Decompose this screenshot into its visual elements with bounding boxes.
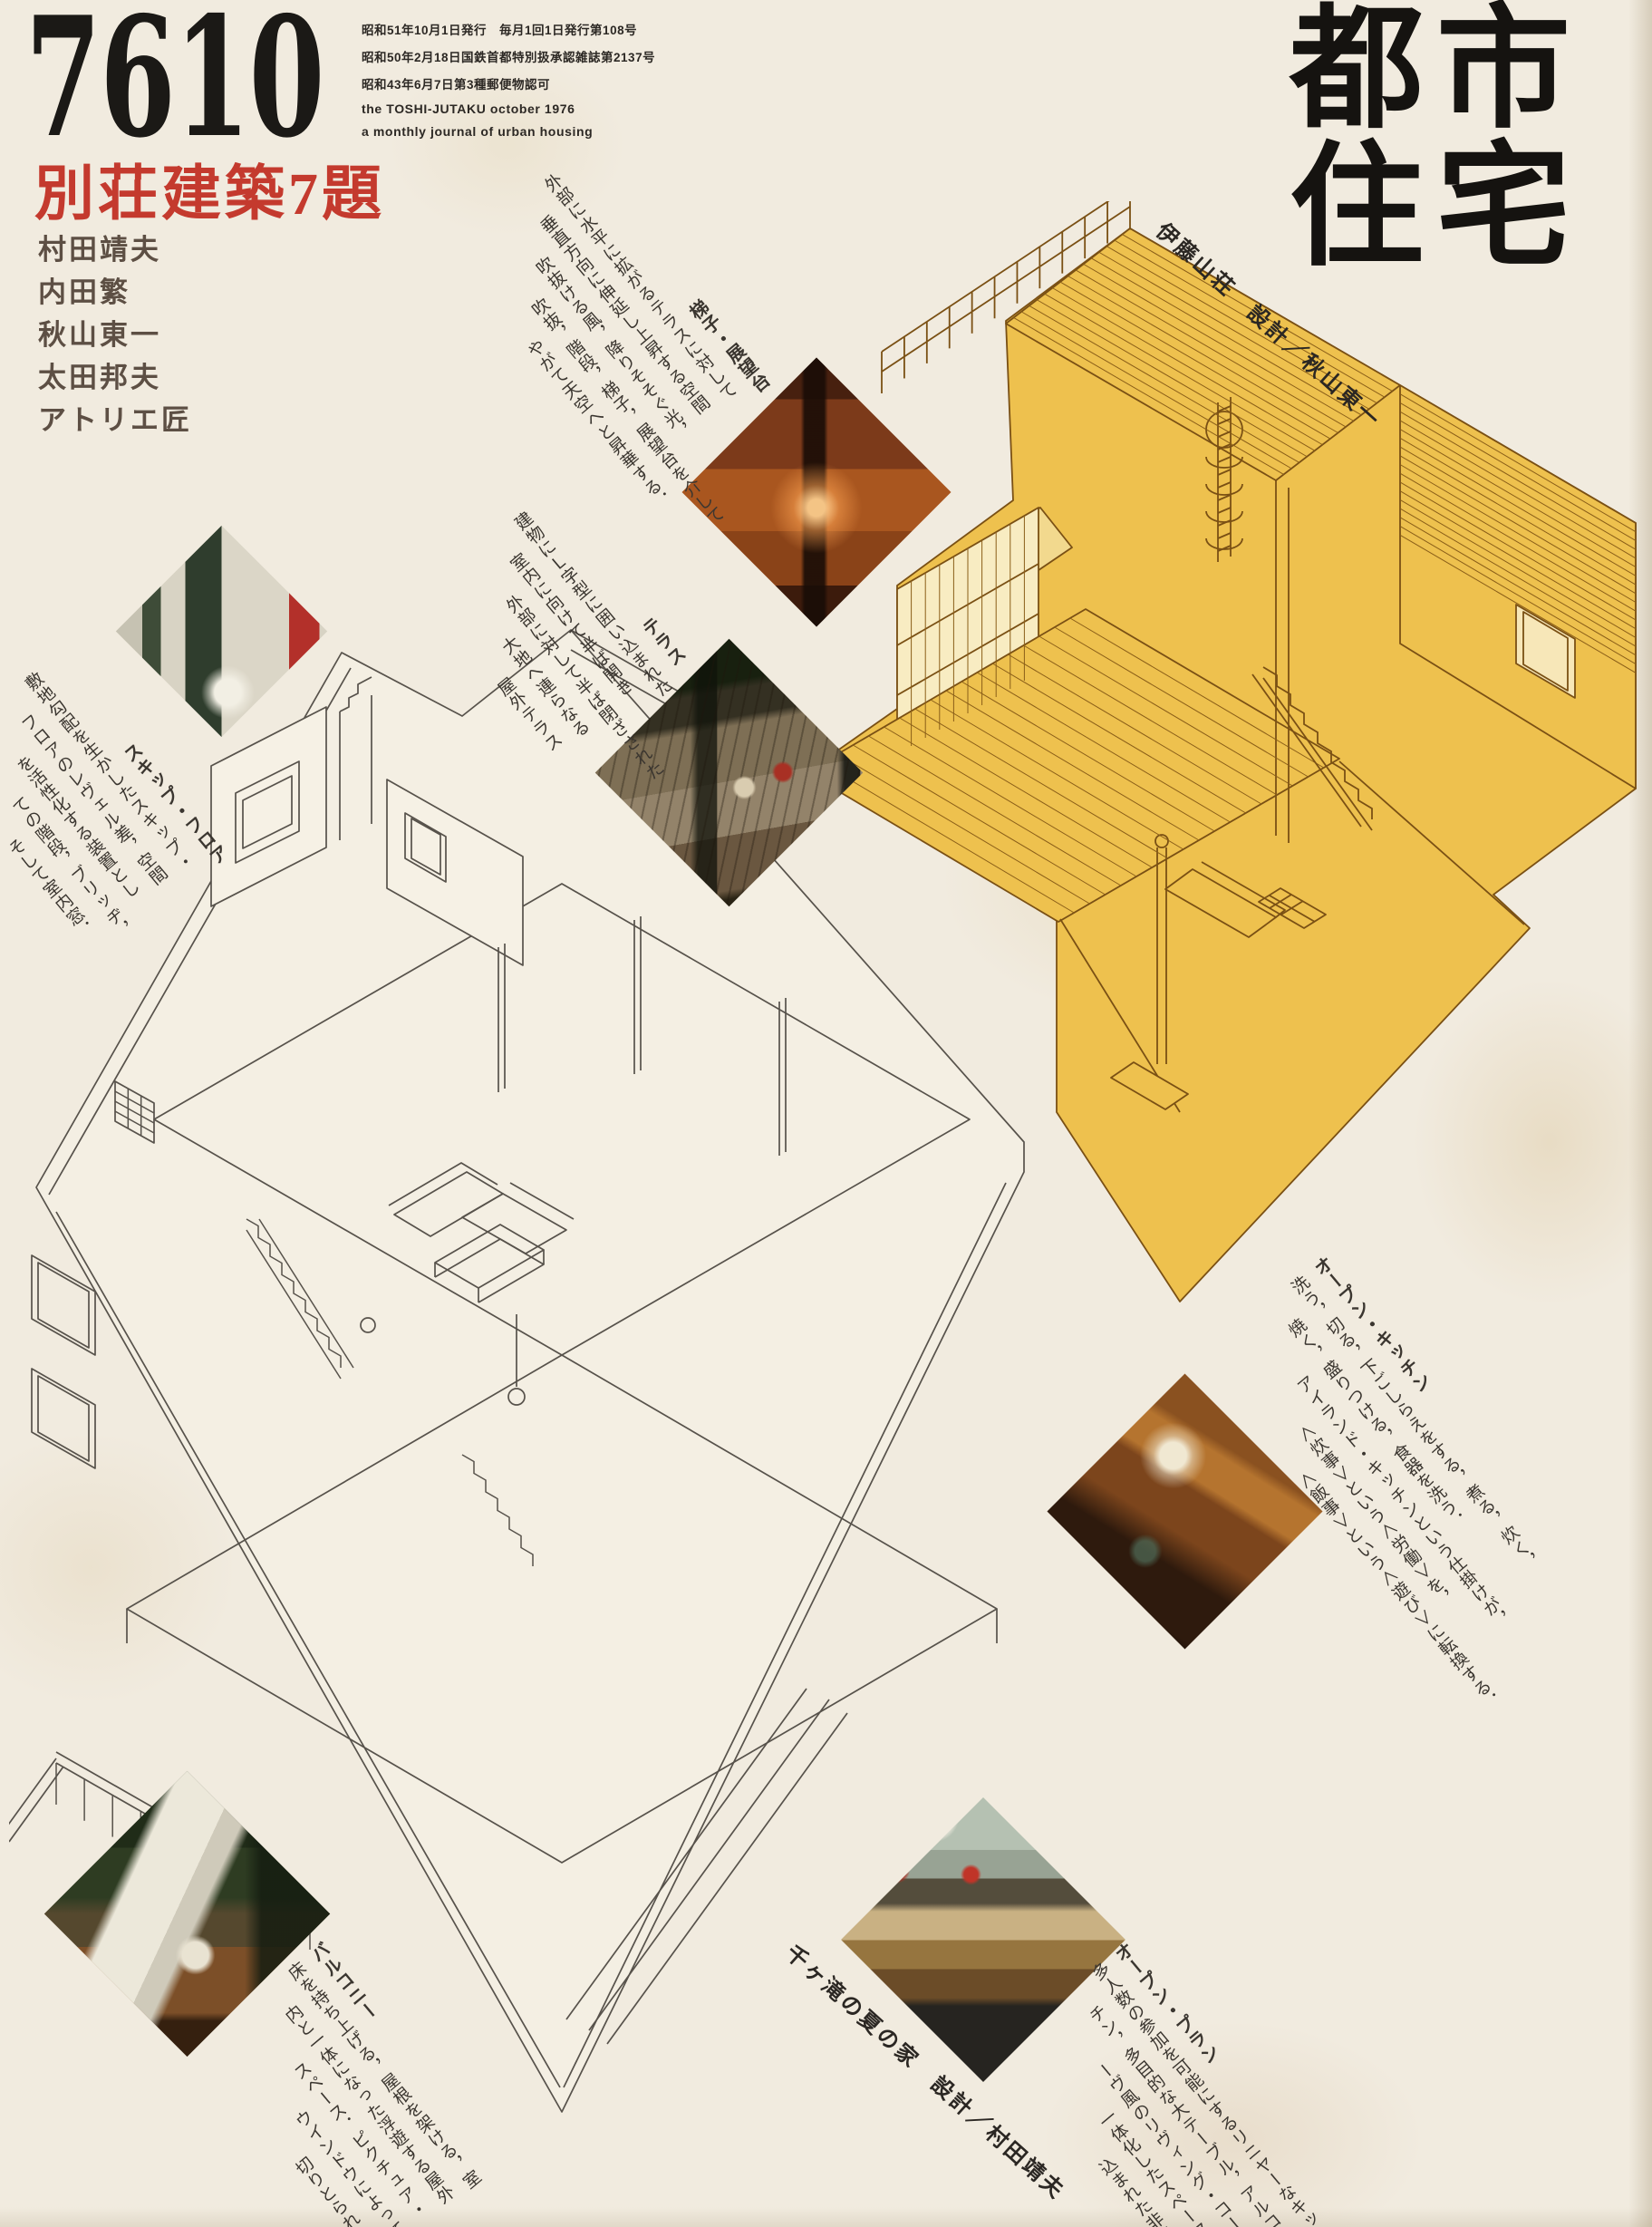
publication-info-line: a monthly journal of urban housing	[362, 124, 655, 147]
yellow-axonometric-house-drawing	[796, 201, 1652, 1334]
author-name: 秋山東一	[38, 312, 192, 354]
feature-title: 別荘建築7題	[34, 145, 385, 232]
author-name: 太田邦夫	[38, 354, 192, 397]
magazine-cover: 7610 別荘建築7題 村田靖夫 内田繁 秋山東一 太田邦夫 アトリエ匠 昭和5…	[0, 0, 1652, 2227]
author-name: 内田繁	[38, 269, 192, 312]
publication-info: 昭和51年10月1日発行 毎月1回1日発行第108号 昭和50年2月18日国鉄首…	[362, 20, 655, 147]
publication-info-line: 昭和51年10月1日発行 毎月1回1日発行第108号	[362, 20, 655, 47]
author-name: アトリエ匠	[38, 397, 192, 440]
page-edge-shading	[0, 2207, 1652, 2227]
author-name: 村田靖夫	[38, 227, 192, 269]
magazine-title-row: 都市	[1290, 2, 1583, 140]
publication-info-line: the TOSHI-JUTAKU october 1976	[362, 102, 655, 124]
publication-info-line: 昭和50年2月18日国鉄首都特別扱承認雑誌第2137号	[362, 47, 655, 74]
publication-info-line: 昭和43年6月7日第3種郵便物認可	[362, 74, 655, 102]
author-list: 村田靖夫 内田繁 秋山東一 太田邦夫 アトリエ匠	[38, 227, 192, 440]
